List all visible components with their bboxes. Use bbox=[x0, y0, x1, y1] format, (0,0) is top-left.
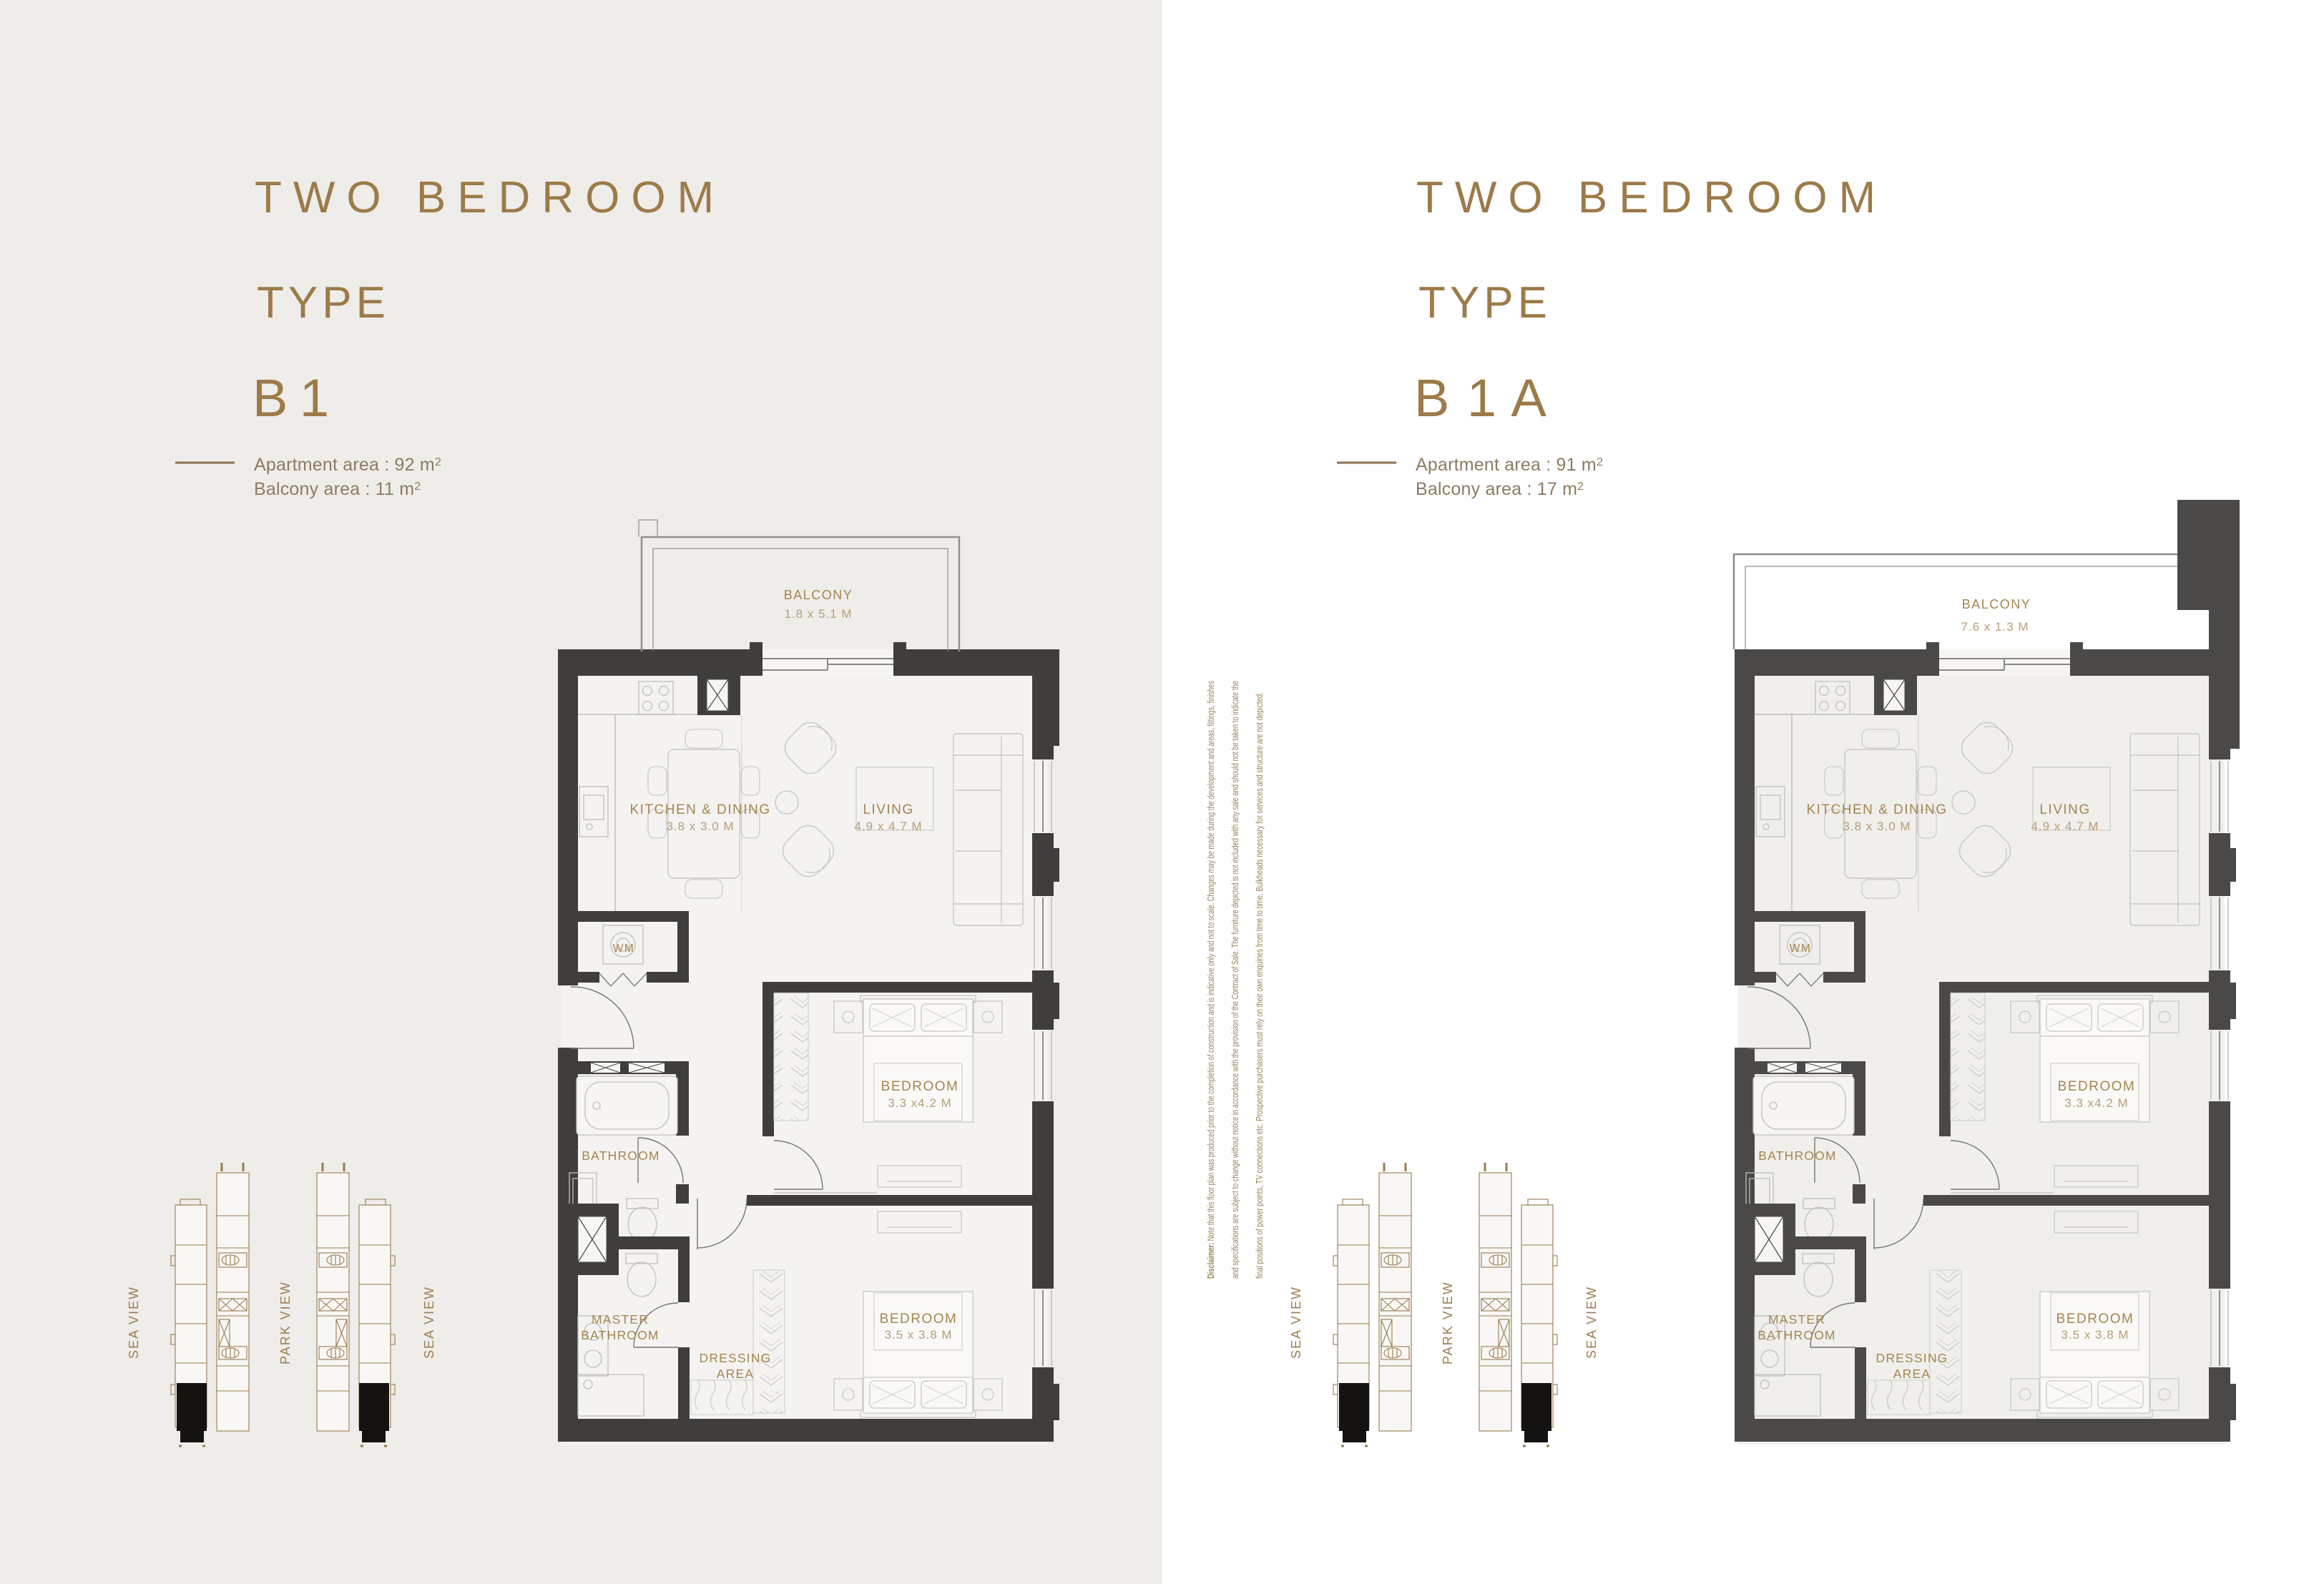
svg-text:7.6 x 1.3 M: 7.6 x 1.3 M bbox=[1961, 620, 2029, 634]
svg-text:Balcony area : 17 m2: Balcony area : 17 m2 bbox=[1416, 479, 1584, 499]
svg-text:TWO BEDROOM: TWO BEDROOM bbox=[255, 173, 725, 222]
svg-text:B 1 A: B 1 A bbox=[1414, 368, 1548, 428]
svg-text:1.8 x 5.1 M: 1.8 x 5.1 M bbox=[784, 607, 852, 621]
svg-text:Apartment area : 91 m2: Apartment area : 91 m2 bbox=[1416, 455, 1603, 475]
svg-text:TWO BEDROOM: TWO BEDROOM bbox=[1416, 173, 1887, 222]
svg-text:TYPE: TYPE bbox=[1418, 278, 1551, 328]
svg-text:B 1: B 1 bbox=[252, 368, 328, 428]
svg-text:SEA VIEW: SEA VIEW bbox=[127, 1286, 141, 1359]
svg-text:Balcony area : 11 m2: Balcony area : 11 m2 bbox=[254, 479, 421, 499]
svg-text:SEA VIEW: SEA VIEW bbox=[422, 1286, 436, 1359]
svg-text:Disclaimer: Note that this flo: Disclaimer: Note that this floor plan wa… bbox=[1206, 681, 1216, 1279]
svg-text:SEA VIEW: SEA VIEW bbox=[1584, 1286, 1599, 1359]
svg-text:SEA VIEW: SEA VIEW bbox=[1289, 1286, 1303, 1359]
svg-text:and specifications are subject: and specifications are subject to change… bbox=[1230, 681, 1240, 1279]
svg-text:TYPE: TYPE bbox=[257, 278, 390, 328]
svg-text:BALCONY: BALCONY bbox=[784, 588, 853, 602]
svg-text:PARK VIEW: PARK VIEW bbox=[1441, 1281, 1455, 1364]
svg-text:BALCONY: BALCONY bbox=[1962, 597, 2031, 611]
svg-text:final positions of power point: final positions of power points, TV conn… bbox=[1255, 692, 1265, 1279]
svg-text:PARK VIEW: PARK VIEW bbox=[278, 1281, 293, 1364]
svg-text:Apartment area : 92 m2: Apartment area : 92 m2 bbox=[254, 455, 441, 475]
